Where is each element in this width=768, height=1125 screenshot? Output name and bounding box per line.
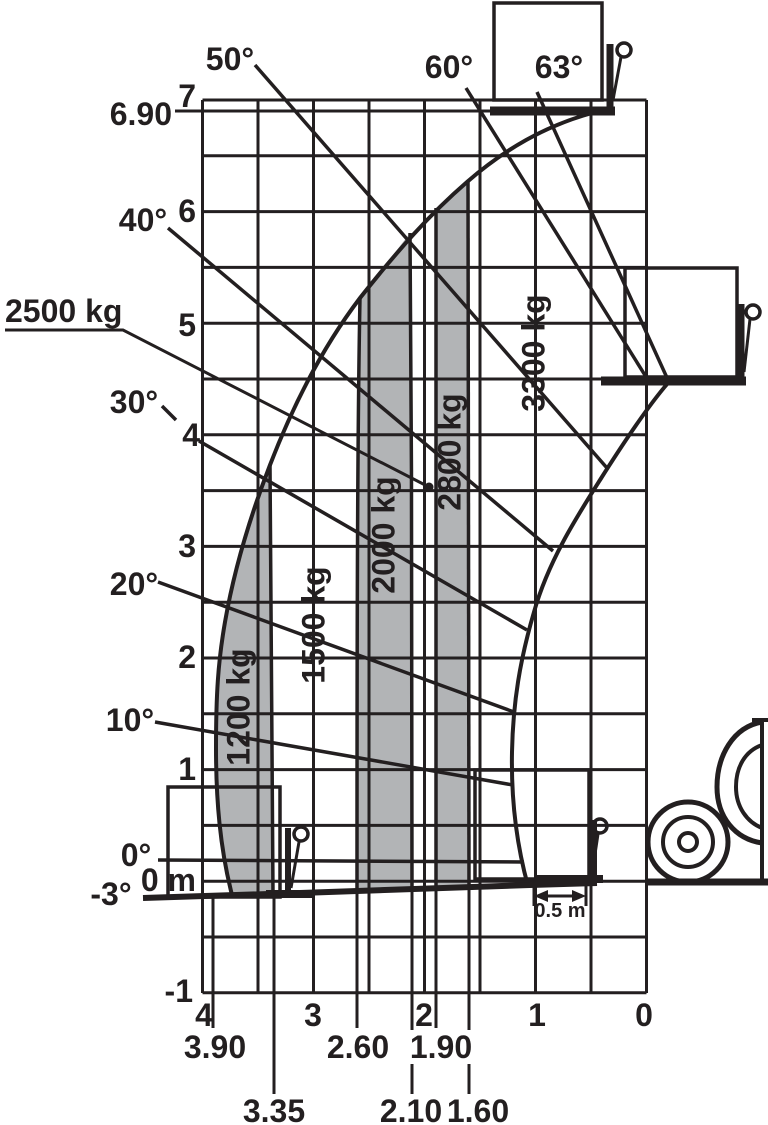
wheel-outer (648, 802, 728, 882)
reach-mark-160: 1.60 (447, 1093, 509, 1125)
reach-mark-390: 3.90 (184, 1029, 246, 1065)
height-label-1: 1 (178, 751, 196, 787)
reach-axis-labels: 4 3 2 1 0 3.90 2.60 1.90 3.35 2.10 1.60 (184, 997, 653, 1125)
fork-icon-bottom-right (536, 819, 607, 879)
angle-label-20: 20° (110, 566, 158, 602)
height-label-neg1: -1 (165, 973, 193, 1009)
angle-label-40: 40° (119, 202, 167, 238)
angle-label-30: 30° (110, 384, 158, 420)
angle-label-neg3: -3° (90, 876, 131, 912)
capacity-label-2000: 2000 kg (365, 476, 401, 593)
reach-mark-190: 1.90 (410, 1029, 472, 1065)
angle-label-50: 50° (206, 41, 254, 77)
reach-mark-260: 2.60 (327, 1029, 389, 1065)
height-label-3: 3 (178, 528, 196, 564)
machine-silhouette (647, 718, 768, 882)
height-label-6: 6 (178, 193, 196, 229)
reach-label-1: 1 (528, 997, 546, 1033)
capacity-label-1500: 1500 kg (295, 566, 331, 683)
angle-label-63: 63° (535, 49, 583, 85)
angle-line-0 (158, 860, 524, 862)
reach-label-3: 3 (304, 997, 322, 1033)
angle-label-60: 60° (425, 49, 473, 85)
dimension-05m-label: 0.5 m (534, 900, 585, 922)
zone-boundary-160 (468, 182, 469, 887)
reach-label-4: 4 (195, 997, 213, 1033)
reach-label-0: 0 (635, 997, 653, 1033)
capacity-label-1200: 1200 kg (220, 648, 256, 765)
reach-mark-335: 3.35 (243, 1093, 305, 1125)
height-label-max: 6.90 (110, 96, 172, 132)
load-chart: 0.5 m 50° 60° 63° 40° 30° 20° 10° 0° -3°… (0, 0, 768, 1125)
capacity-label-2500: 2500 kg (5, 293, 122, 329)
capacity-label-3300: 3300 kg (515, 294, 551, 411)
reach-label-2: 2 (415, 997, 433, 1033)
angle-label-10: 10° (106, 702, 154, 738)
angle-labels: 50° 60° 63° 40° 30° 20° 10° 0° -3° (90, 41, 583, 912)
wheel-hub (679, 833, 697, 851)
wheel-middle (663, 817, 713, 867)
height-label-2: 2 (178, 639, 196, 675)
fender-inner (736, 745, 762, 828)
height-label-4: 4 (182, 417, 200, 453)
capacity-label-2800: 2800 kg (431, 393, 467, 510)
height-label-5: 5 (178, 307, 196, 343)
height-label-0: 0 m (141, 862, 196, 898)
zone-2800kg (436, 182, 469, 888)
angle-line-30 (162, 406, 527, 630)
height-label-7: 7 (178, 78, 196, 114)
load-chart-page: 0.5 m 50° 60° 63° 40° 30° 20° 10° 0° -3°… (0, 0, 768, 1125)
reach-mark-210: 2.10 (380, 1093, 442, 1125)
chassis-front (752, 718, 768, 880)
